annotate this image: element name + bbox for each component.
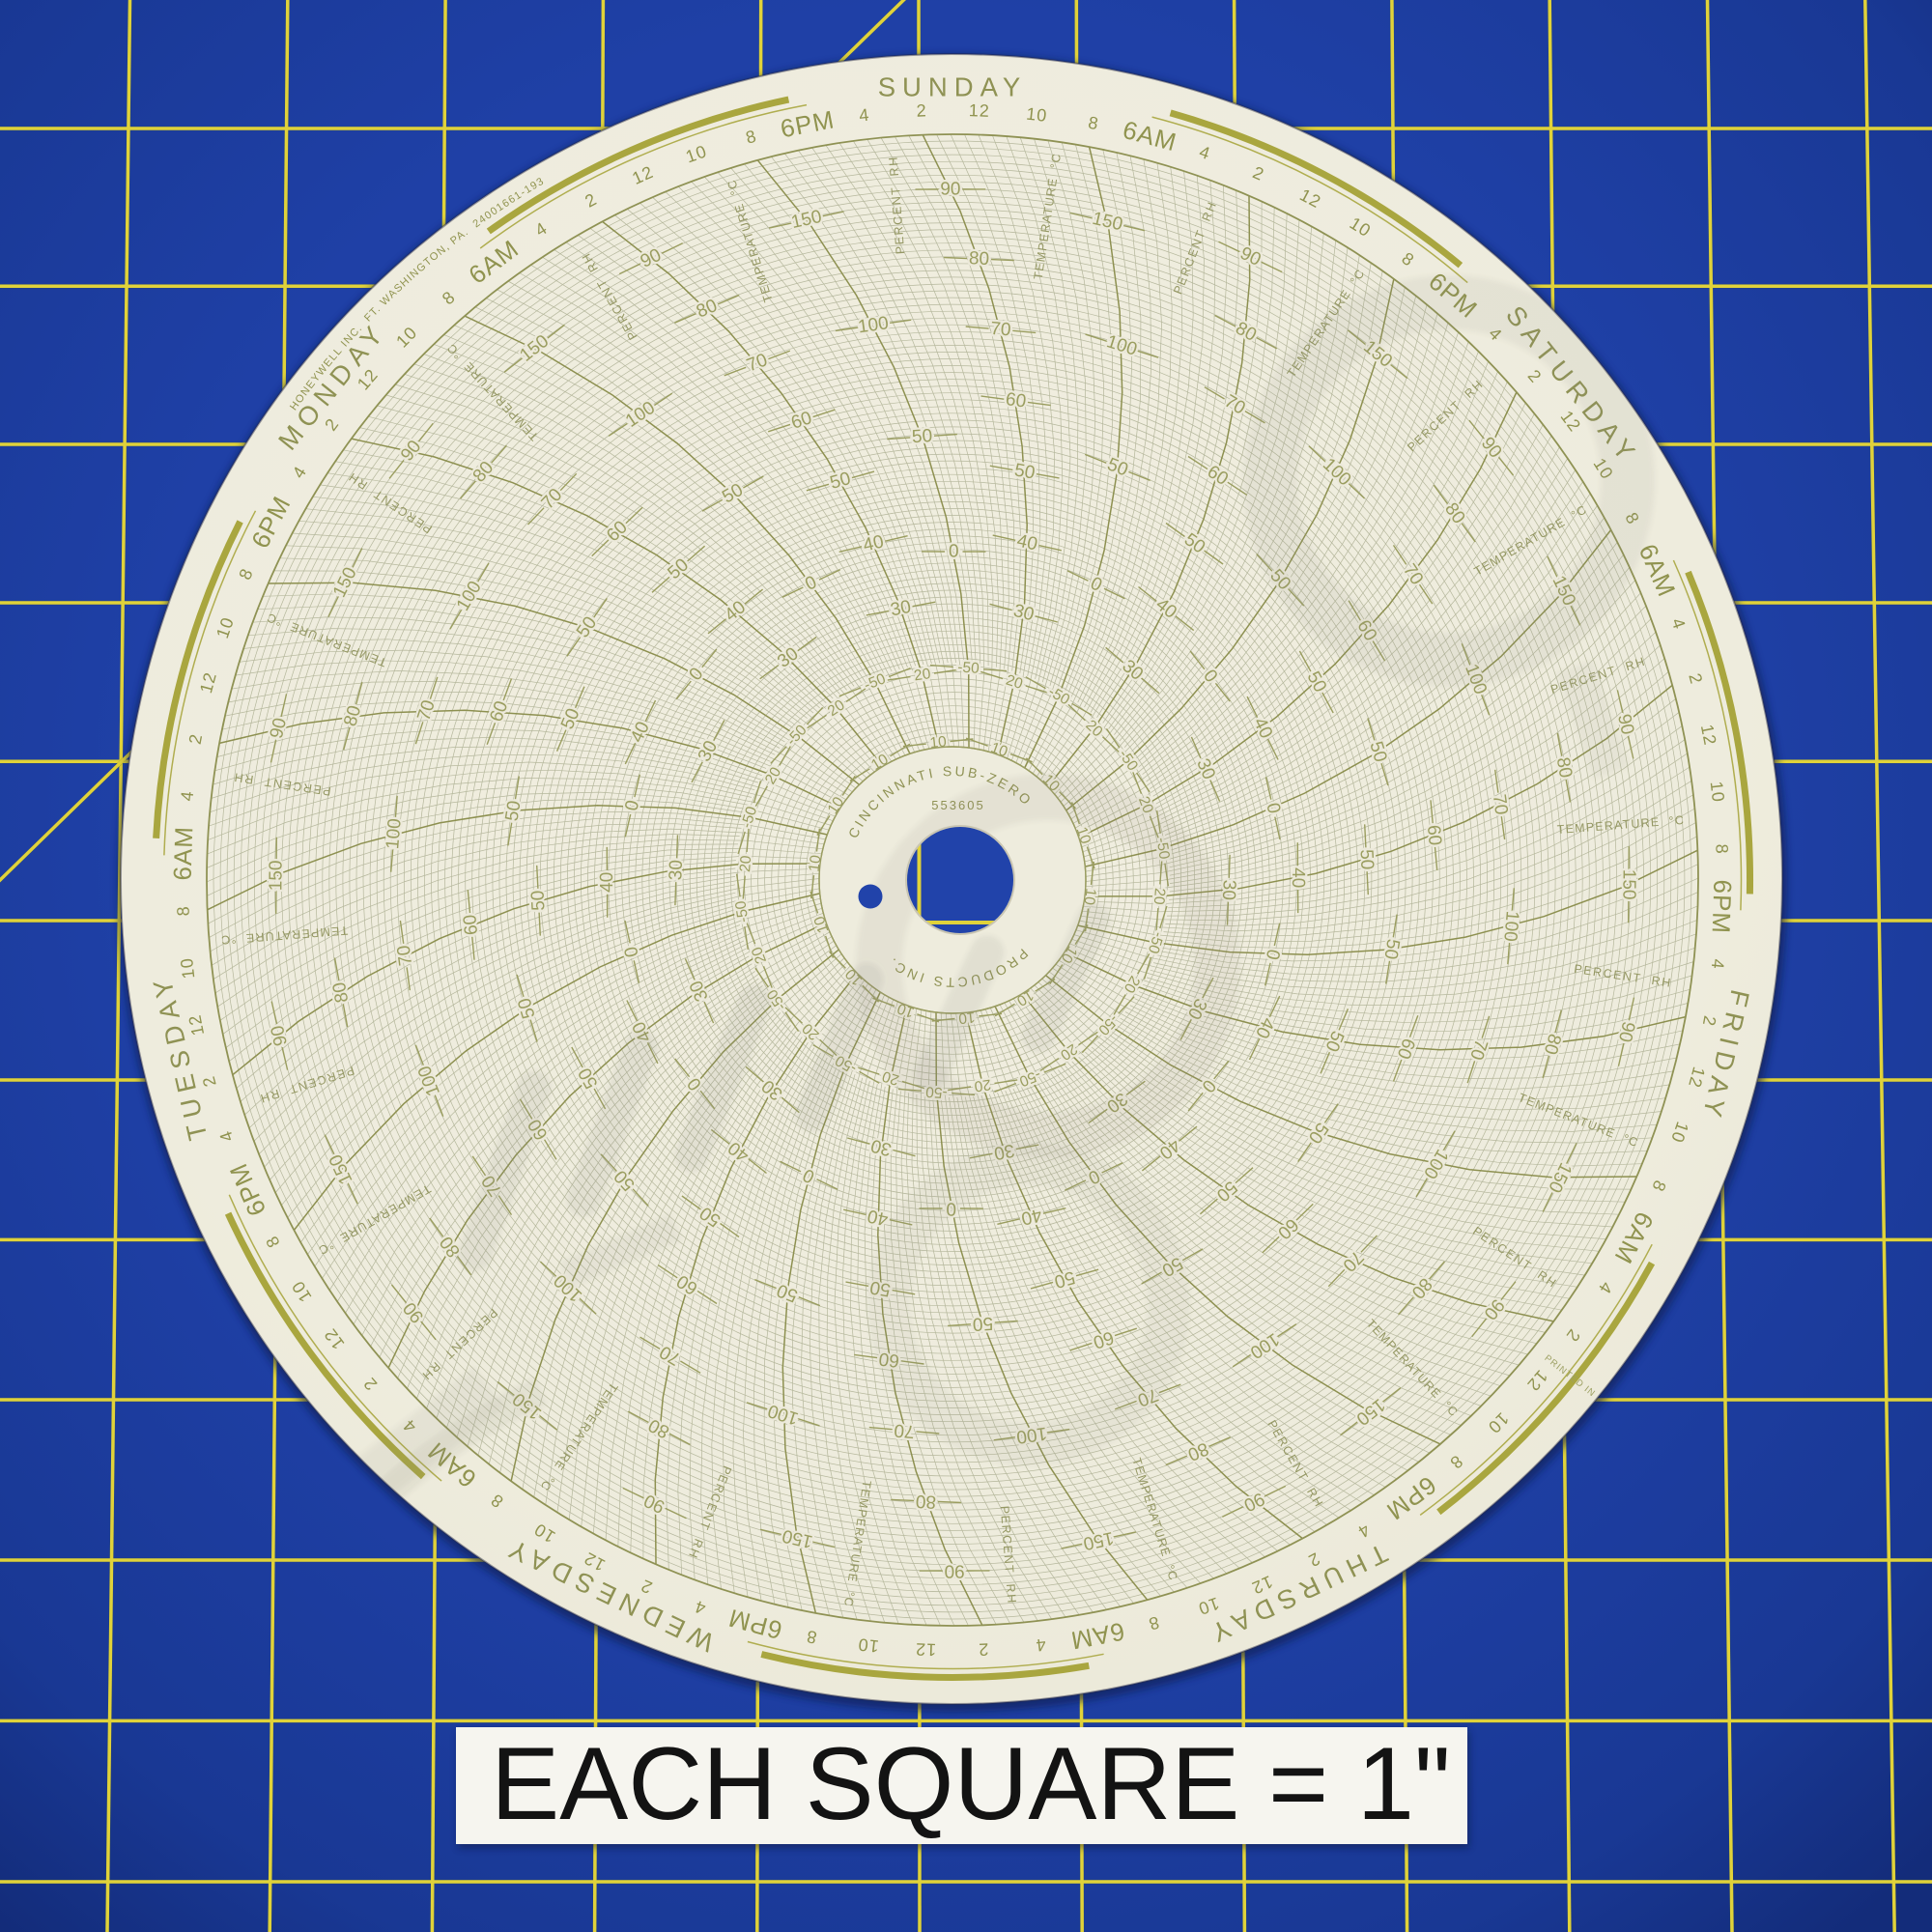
svg-text:4: 4 [177, 789, 197, 802]
svg-text:-50: -50 [732, 899, 752, 923]
svg-text:100: 100 [1499, 910, 1522, 942]
svg-text:SUNDAY: SUNDAY [878, 72, 1028, 102]
svg-text:6PM: 6PM [1707, 879, 1738, 934]
svg-text:10: 10 [177, 956, 198, 980]
svg-text:EACH SQUARE = 1": EACH SQUARE = 1" [491, 1726, 1451, 1841]
svg-text:12: 12 [968, 100, 990, 121]
svg-text:40: 40 [1288, 867, 1308, 888]
svg-text:2: 2 [916, 100, 927, 120]
svg-text:60: 60 [1423, 824, 1445, 846]
svg-text:80: 80 [915, 1491, 936, 1512]
svg-text:50: 50 [502, 799, 526, 822]
svg-text:40: 40 [597, 872, 617, 893]
svg-text:50: 50 [1012, 460, 1036, 483]
svg-text:150: 150 [266, 860, 286, 891]
svg-text:70: 70 [394, 944, 417, 967]
svg-text:30: 30 [666, 860, 687, 881]
svg-text:4: 4 [1035, 1634, 1047, 1655]
svg-text:30: 30 [889, 597, 913, 621]
svg-text:20: 20 [737, 855, 754, 873]
svg-text:70: 70 [989, 319, 1011, 341]
svg-text:-50: -50 [957, 659, 980, 677]
svg-text:10: 10 [1025, 104, 1048, 126]
svg-text:4: 4 [1708, 958, 1728, 971]
svg-text:90: 90 [944, 1560, 964, 1580]
svg-text:50: 50 [1355, 849, 1377, 870]
svg-text:80: 80 [329, 980, 353, 1005]
svg-text:10: 10 [1707, 781, 1728, 804]
svg-text:4: 4 [858, 105, 870, 126]
svg-text:70: 70 [1489, 793, 1512, 816]
svg-text:12: 12 [1697, 723, 1720, 747]
svg-text:40: 40 [866, 1205, 890, 1229]
svg-text:20: 20 [973, 1076, 992, 1094]
svg-text:60: 60 [460, 914, 482, 936]
svg-text:50: 50 [911, 426, 933, 447]
svg-text:100: 100 [383, 818, 406, 850]
svg-text:20: 20 [1151, 888, 1168, 906]
svg-text:10: 10 [857, 1634, 880, 1656]
svg-text:8: 8 [1712, 843, 1731, 855]
svg-text:8: 8 [173, 905, 192, 917]
svg-text:60: 60 [1005, 389, 1028, 412]
svg-text:0: 0 [949, 541, 959, 561]
svg-text:100: 100 [857, 313, 890, 337]
svg-text:6AM: 6AM [168, 825, 199, 880]
svg-text:50: 50 [1379, 937, 1403, 960]
svg-text:150: 150 [1618, 869, 1638, 900]
svg-text:50: 50 [527, 890, 549, 911]
svg-text:90: 90 [940, 179, 960, 199]
svg-text:20: 20 [913, 666, 932, 684]
svg-text:12: 12 [915, 1639, 937, 1660]
svg-text:50: 50 [972, 1313, 994, 1334]
svg-text:2: 2 [978, 1639, 989, 1659]
svg-text:40: 40 [1015, 530, 1039, 554]
svg-text:70: 70 [894, 1419, 916, 1441]
svg-text:80: 80 [968, 248, 989, 270]
svg-text:80: 80 [1552, 755, 1576, 780]
